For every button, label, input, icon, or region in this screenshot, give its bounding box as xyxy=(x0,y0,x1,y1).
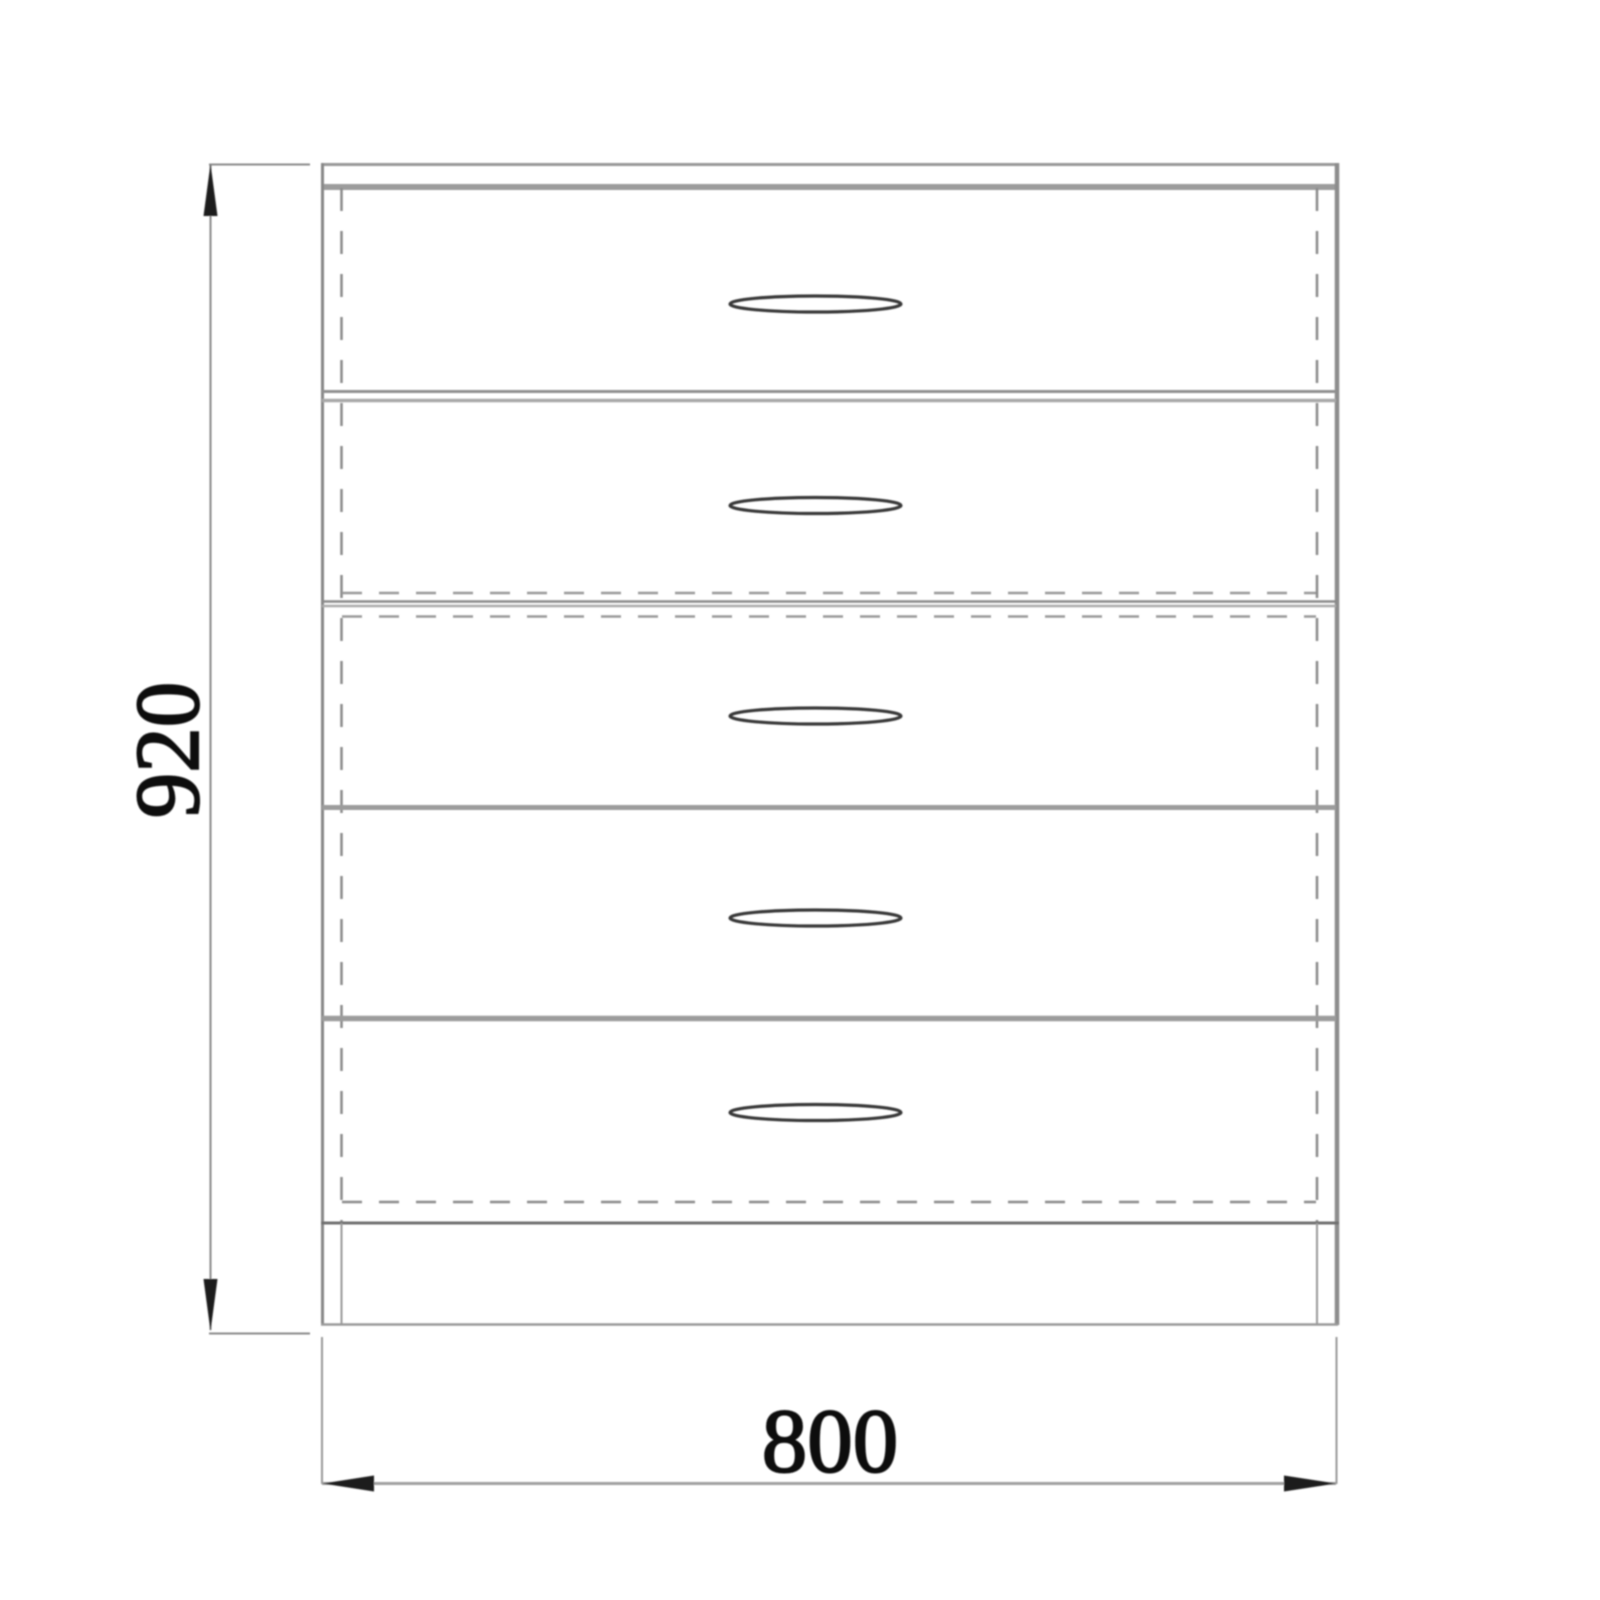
svg-text:920: 920 xyxy=(117,682,218,819)
svg-text:800: 800 xyxy=(762,1391,899,1492)
